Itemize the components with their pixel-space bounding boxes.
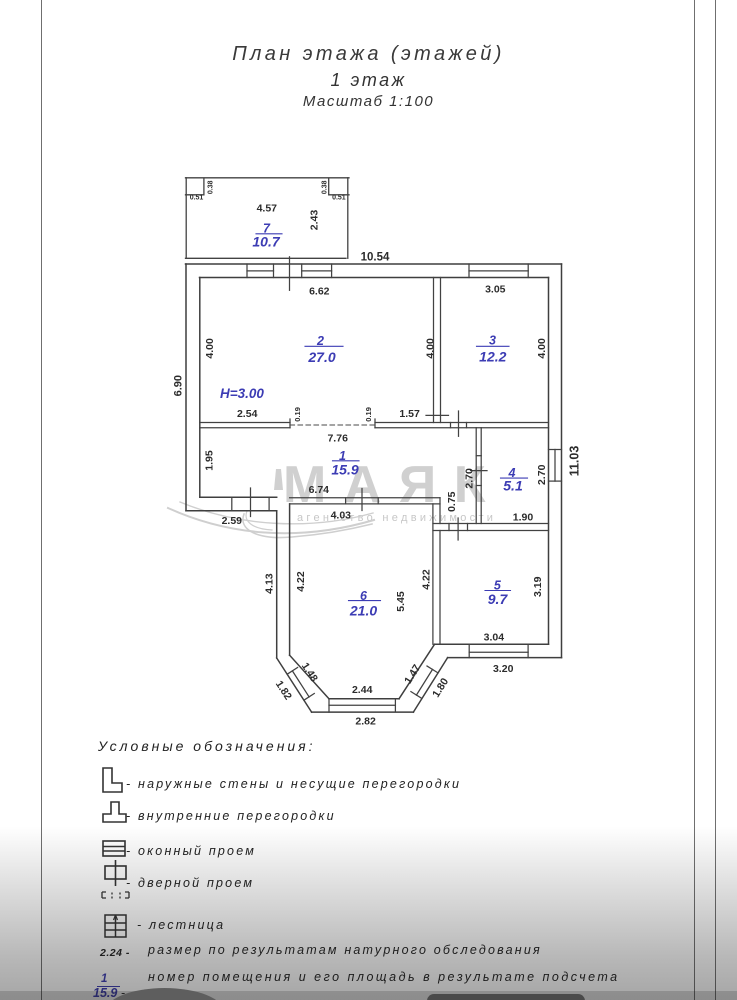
svg-text:4.03: 4.03 (331, 509, 352, 521)
svg-text:4.00: 4.00 (536, 338, 548, 359)
svg-text:1.90: 1.90 (513, 512, 534, 524)
svg-text:9.7: 9.7 (488, 591, 509, 607)
svg-text:7.76: 7.76 (327, 433, 348, 445)
svg-text:3.19: 3.19 (532, 576, 544, 597)
svg-text:0.19: 0.19 (293, 407, 302, 422)
svg-text:2.43: 2.43 (309, 210, 321, 231)
svg-text:21.0: 21.0 (349, 603, 377, 619)
svg-text:0.38: 0.38 (322, 180, 329, 194)
svg-text:2.70: 2.70 (463, 468, 475, 489)
svg-text:4.00: 4.00 (425, 338, 437, 359)
svg-text:5.45: 5.45 (395, 591, 407, 612)
svg-text:4.13: 4.13 (264, 573, 276, 594)
svg-text:10.7: 10.7 (252, 234, 280, 250)
svg-text:3.04: 3.04 (484, 632, 505, 644)
svg-text:2.70: 2.70 (536, 464, 548, 485)
svg-text:2.82: 2.82 (355, 716, 376, 728)
svg-text:6.90: 6.90 (172, 375, 184, 396)
svg-text:10.54: 10.54 (361, 252, 390, 264)
svg-text:2.44: 2.44 (352, 684, 373, 696)
svg-text:0.51: 0.51 (190, 195, 204, 202)
svg-text:1.95: 1.95 (203, 450, 215, 471)
svg-text:2.59: 2.59 (222, 515, 243, 527)
svg-text:3: 3 (489, 334, 496, 348)
svg-text:2.54: 2.54 (237, 408, 258, 420)
svg-text:0.51: 0.51 (332, 195, 346, 202)
svg-text:11.03: 11.03 (567, 446, 581, 477)
svg-text:6.62: 6.62 (309, 286, 330, 298)
svg-text:0.38: 0.38 (208, 180, 215, 194)
svg-text:0.75: 0.75 (446, 491, 458, 512)
svg-text:4.22: 4.22 (295, 571, 307, 592)
svg-text:3.05: 3.05 (485, 284, 506, 296)
svg-text:3.20: 3.20 (493, 663, 514, 675)
svg-text:12.2: 12.2 (479, 349, 506, 365)
svg-text:4.00: 4.00 (204, 338, 216, 359)
svg-text:6.74: 6.74 (309, 484, 330, 496)
svg-text:5.1: 5.1 (503, 478, 523, 494)
svg-text:1.82: 1.82 (273, 679, 294, 703)
svg-text:4.22: 4.22 (420, 569, 432, 590)
svg-text:1.57: 1.57 (399, 408, 420, 420)
svg-text:1.48: 1.48 (299, 661, 320, 685)
svg-text:15.9: 15.9 (331, 462, 358, 478)
svg-text:0.19: 0.19 (364, 407, 373, 422)
svg-text:H=3.00: H=3.00 (220, 386, 264, 401)
svg-text:27.0: 27.0 (307, 349, 335, 365)
svg-text:4.57: 4.57 (257, 203, 278, 215)
